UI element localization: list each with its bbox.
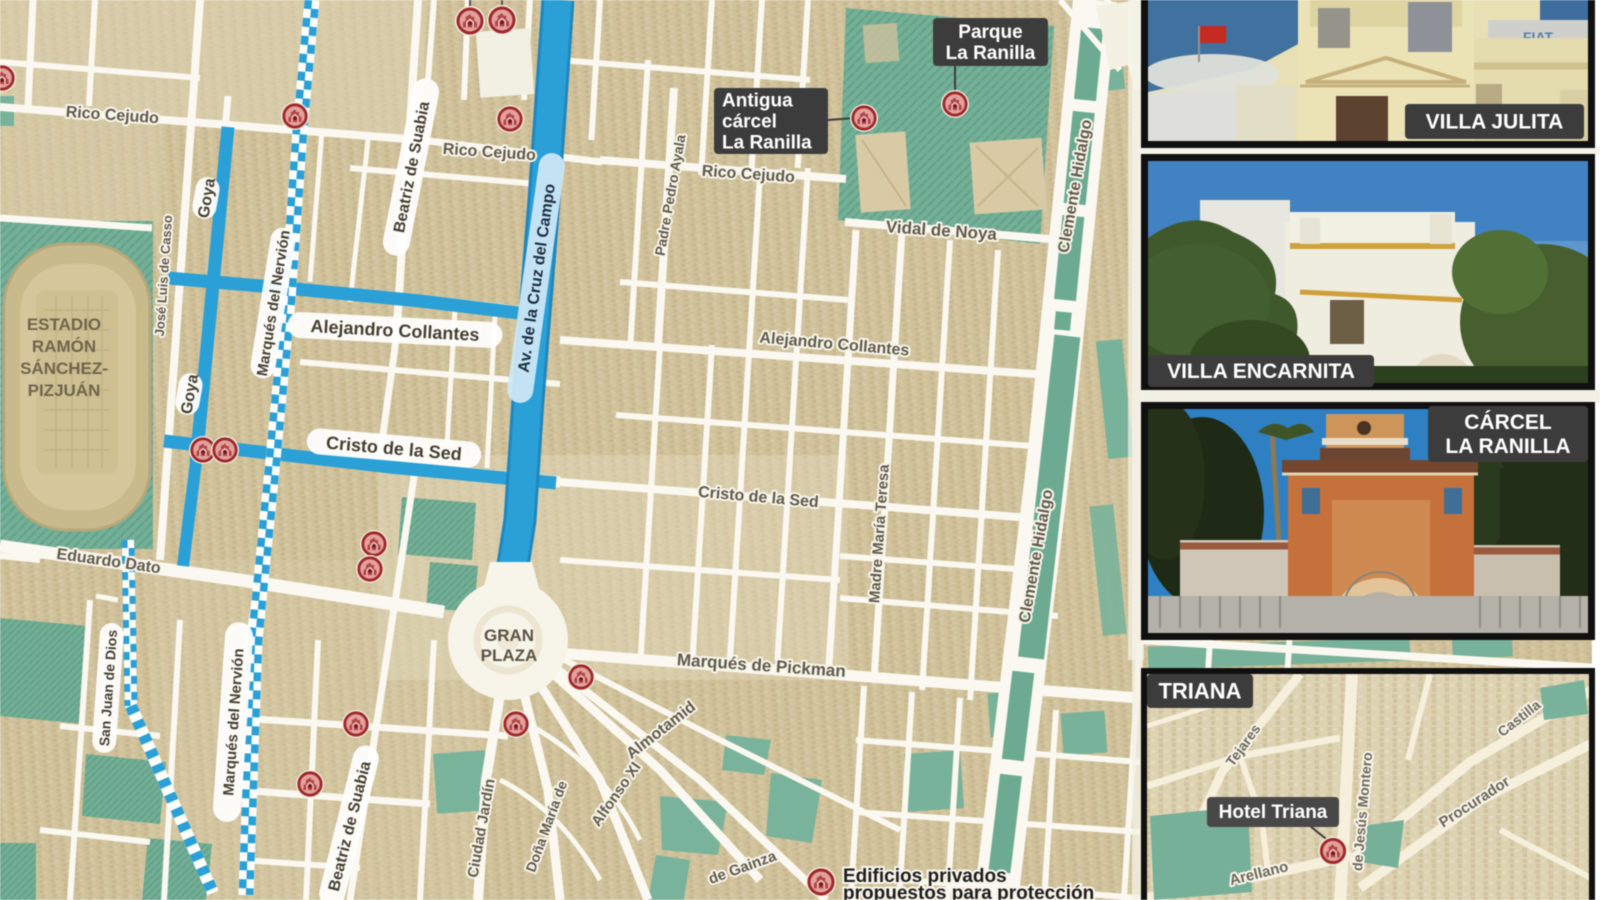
svg-text:PLAZA: PLAZA [481,646,538,665]
svg-text:Hotel Triana: Hotel Triana [1219,802,1328,823]
svg-text:CÁRCEL: CÁRCEL [1464,411,1552,434]
svg-text:VILLA JULITA: VILLA JULITA [1426,110,1564,133]
svg-text:VILLA ENCARNITA: VILLA ENCARNITA [1167,360,1355,383]
svg-text:ESTADIO: ESTADIO [27,315,101,334]
svg-text:La Ranilla: La Ranilla [946,43,1036,64]
svg-text:La Ranilla: La Ranilla [722,132,812,153]
svg-text:SÁNCHEZ-: SÁNCHEZ- [20,359,108,378]
svg-text:propuestos para protección: propuestos para protección [843,883,1094,900]
svg-text:TRIANA: TRIANA [1158,678,1241,703]
svg-text:PIZJUÁN: PIZJUÁN [28,381,101,400]
svg-text:Antigua: Antigua [722,90,793,111]
svg-text:Parque: Parque [958,22,1022,43]
svg-text:cárcel: cárcel [722,111,777,132]
svg-text:LA RANILLA: LA RANILLA [1445,435,1570,458]
svg-text:RAMÓN: RAMÓN [32,337,96,356]
svg-text:GRAN: GRAN [484,626,534,645]
